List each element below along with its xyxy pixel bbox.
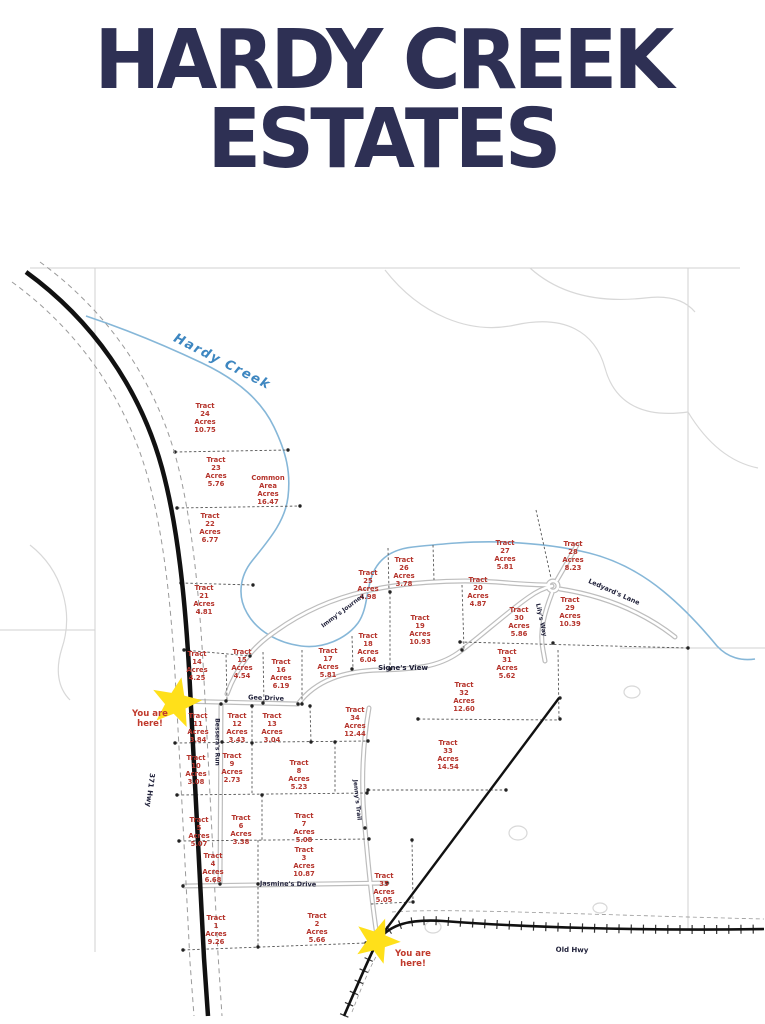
- old-highway: [344, 911, 764, 1016]
- you-are-here-star: [147, 672, 206, 729]
- plat-map-page: Hardy Creek Tract 1 Acres 9.26Tract 2 Ac…: [0, 0, 765, 1024]
- title-line-1: HARDY CREEK: [15, 22, 749, 101]
- page-title: HARDY CREEK ESTATES: [0, 22, 765, 179]
- lot-lines: [175, 450, 688, 950]
- highway-371: [12, 262, 222, 1016]
- diagonal-boundary-road: [378, 698, 559, 940]
- survey-corner-dots: [173, 448, 689, 951]
- section-lines: [0, 268, 765, 952]
- contour-lines: [30, 268, 758, 933]
- title-line-2: ESTATES: [15, 101, 749, 180]
- you-are-here-star: [349, 911, 406, 967]
